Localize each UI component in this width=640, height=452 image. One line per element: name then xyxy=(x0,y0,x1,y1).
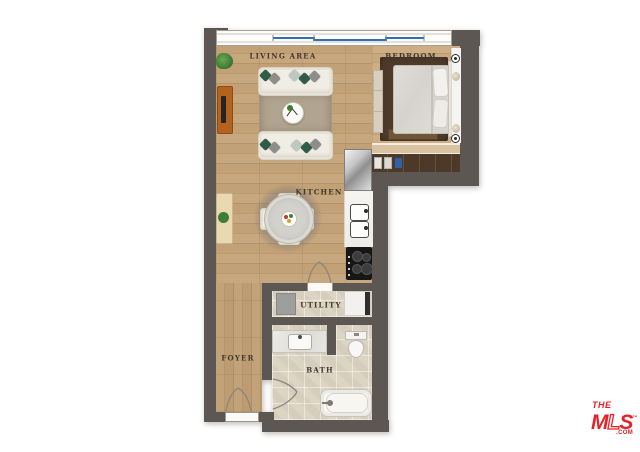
floor-plan: LIVING AREA BEDROOM KITCHEN UTILITY FOYE… xyxy=(0,0,640,452)
door-swings xyxy=(0,0,640,452)
themls-logo: THE MLS™ .COM xyxy=(591,401,637,436)
label-foyer: FOYER xyxy=(221,354,254,363)
logo-mls: MLS™ xyxy=(591,410,637,431)
label-bedroom: BEDROOM xyxy=(385,52,436,61)
label-bath: BATH xyxy=(306,366,334,375)
label-utility: UTILITY xyxy=(300,301,341,310)
label-living-area: LIVING AREA xyxy=(250,52,317,61)
logo-the: THE xyxy=(592,401,637,410)
label-kitchen: KITCHEN xyxy=(296,188,343,197)
floor-plan-image: LIVING AREA BEDROOM KITCHEN UTILITY FOYE… xyxy=(0,0,640,452)
logo-m: M xyxy=(591,411,608,434)
logo-tm: ™ xyxy=(632,415,637,421)
